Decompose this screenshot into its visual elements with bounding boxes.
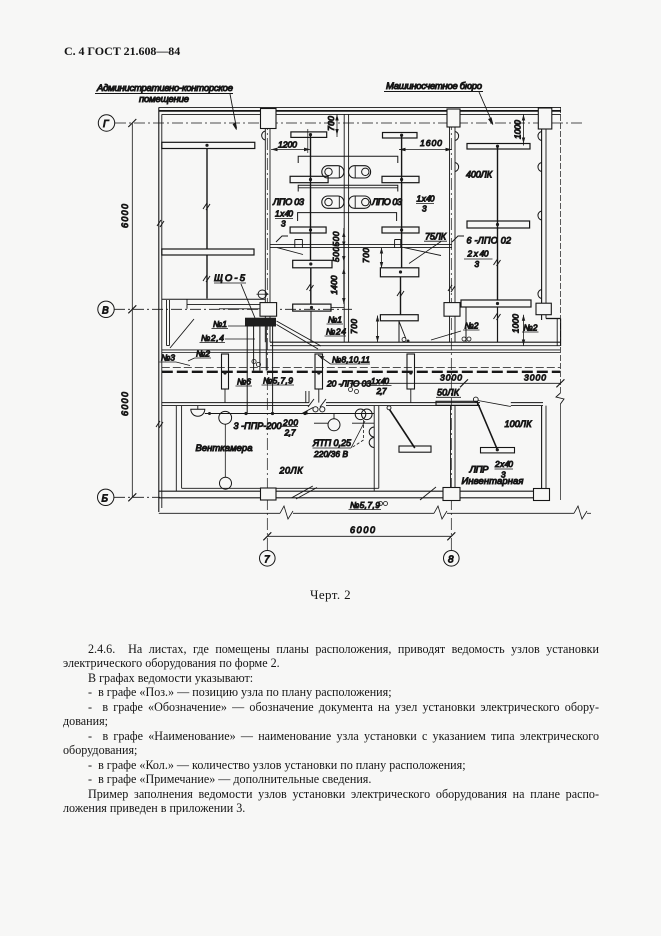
svg-text:№8,10,11: №8,10,11 [332,355,370,365]
svg-text:№3: №3 [161,353,175,363]
svg-text:7: 7 [264,555,270,566]
svg-text:№2: №2 [196,349,210,359]
svg-text:1000: 1000 [512,314,521,333]
svg-text:Венткамера: Венткамера [196,443,253,454]
svg-text:2,7: 2,7 [376,387,388,396]
svg-text:500: 500 [332,247,341,262]
svg-text:6000: 6000 [350,525,375,535]
svg-text:№5,7,9: №5,7,9 [350,500,380,510]
svg-text:1 х 40: 1 х 40 [275,209,293,219]
svg-text:№2,4: №2,4 [201,333,224,343]
svg-text:помещение: помещение [139,94,189,105]
svg-text:Инвентарная: Инвентарная [462,476,524,487]
svg-text:№5,7,9: №5,7,9 [263,376,293,386]
svg-text:Машиносчетное бюро: Машиносчетное бюро [386,81,482,92]
svg-text:6000: 6000 [120,204,130,228]
svg-text:20 -ЛПО 03: 20 -ЛПО 03 [326,379,371,389]
svg-text:№24: №24 [326,327,346,337]
svg-text:1000: 1000 [513,120,523,139]
svg-text:1 х 40: 1 х 40 [371,377,390,386]
svg-text:ЩО-5: ЩО-5 [214,273,246,284]
svg-text:1400: 1400 [330,275,339,294]
svg-text:ЛПО 03: ЛПО 03 [272,197,304,207]
svg-text:6000: 6000 [120,392,130,416]
svg-text:50ЛК: 50ЛК [437,388,460,398]
svg-text:3: 3 [475,259,480,269]
svg-text:№1: №1 [328,315,342,325]
svg-text:75ЛК: 75ЛК [425,232,447,242]
svg-text:ЛПО 03: ЛПО 03 [371,197,402,207]
svg-text:500: 500 [332,231,341,246]
svg-text:1200: 1200 [278,139,297,149]
svg-text:700: 700 [362,248,371,263]
svg-text:8: 8 [448,555,454,566]
svg-text:Б: Б [102,494,109,505]
svg-text:2 х 40: 2 х 40 [467,249,489,259]
svg-text:1600: 1600 [420,138,442,148]
svg-text:ЛПР: ЛПР [469,465,490,476]
svg-text:6 -ЛПО 02: 6 -ЛПО 02 [467,236,512,246]
svg-text:3000: 3000 [524,373,546,383]
svg-text:400ЛК: 400ЛК [466,170,493,180]
svg-text:3000: 3000 [440,373,462,383]
svg-text:3: 3 [281,219,286,229]
svg-text:2 х 40: 2 х 40 [494,459,513,469]
svg-text:20ЛК: 20ЛК [279,466,304,476]
svg-text:Административно-конторское: Административно-конторское [96,83,233,94]
svg-text:700: 700 [326,116,336,131]
svg-text:700: 700 [350,319,359,334]
svg-text:2,7: 2,7 [284,428,296,438]
svg-text:№1: №1 [213,319,227,329]
svg-text:№2: №2 [465,321,479,331]
svg-text:220/36 В: 220/36 В [313,449,348,459]
svg-text:3: 3 [422,204,427,214]
svg-text:ЯТП 0,25: ЯТП 0,25 [312,438,352,448]
svg-text:200: 200 [282,418,298,428]
svg-text:В: В [102,306,109,317]
svg-text:100ЛК: 100ЛК [505,419,533,429]
svg-text:№2: №2 [524,323,538,333]
svg-text:№6: №6 [237,377,251,387]
svg-text:Г: Г [103,119,110,130]
svg-text:3 -ППР-200: 3 -ППР-200 [234,421,282,431]
svg-text:1 х 40: 1 х 40 [417,194,435,204]
